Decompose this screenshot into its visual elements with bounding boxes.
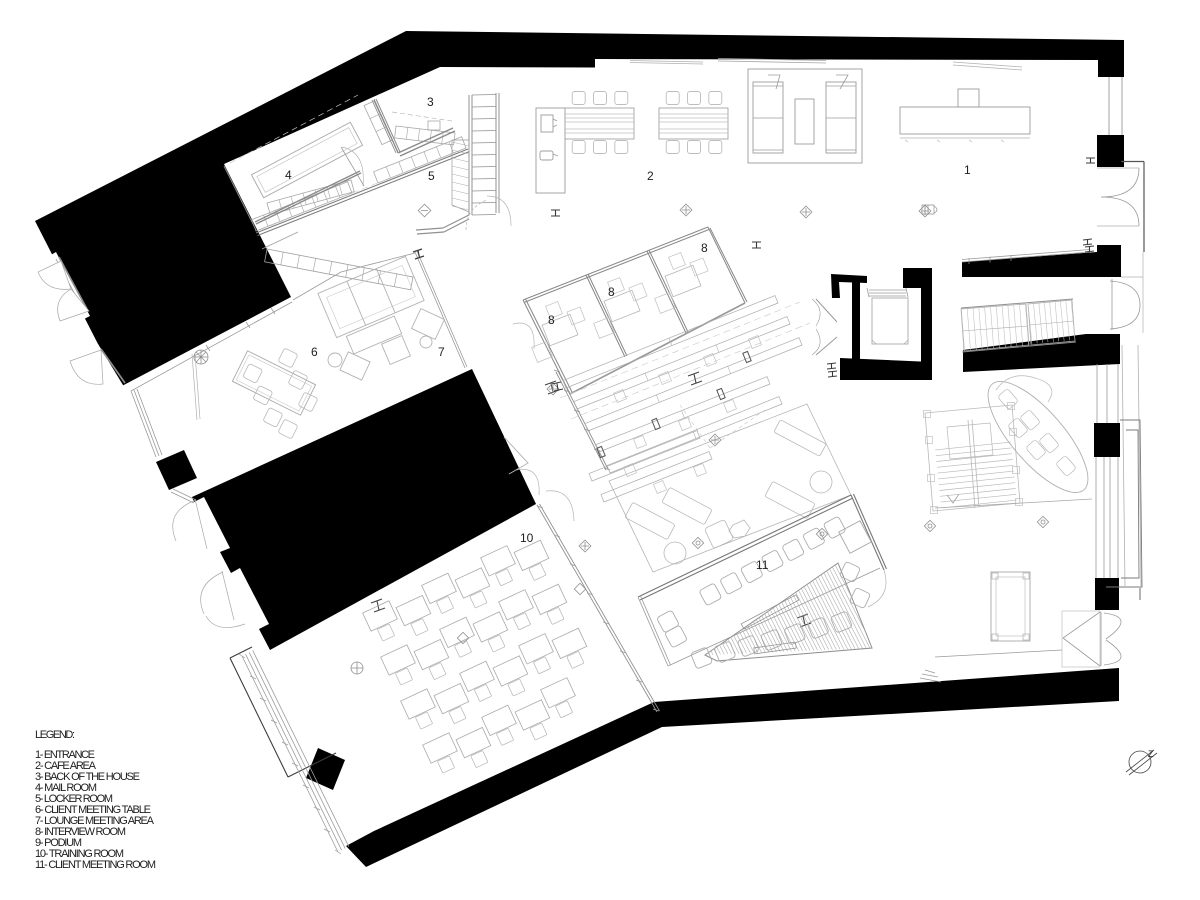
- svg-text:8: 8: [701, 241, 708, 255]
- svg-text:4: 4: [285, 168, 292, 182]
- svg-text:6: 6: [311, 345, 318, 359]
- svg-text:5: 5: [428, 169, 435, 183]
- svg-text:1: 1: [964, 163, 971, 177]
- svg-text:11: 11: [756, 558, 769, 572]
- svg-text:10: 10: [520, 531, 534, 545]
- svg-text:2: 2: [647, 169, 654, 183]
- svg-text:Z: Z: [1148, 749, 1154, 759]
- svg-text:8: 8: [548, 313, 555, 327]
- svg-text:8: 8: [608, 285, 615, 299]
- svg-text:7: 7: [438, 345, 445, 359]
- svg-text:3: 3: [427, 95, 434, 109]
- svg-text:LEGEND:: LEGEND:: [35, 729, 75, 741]
- svg-text:11- CLIENT MEETING ROOM: 11- CLIENT MEETING ROOM: [35, 859, 156, 871]
